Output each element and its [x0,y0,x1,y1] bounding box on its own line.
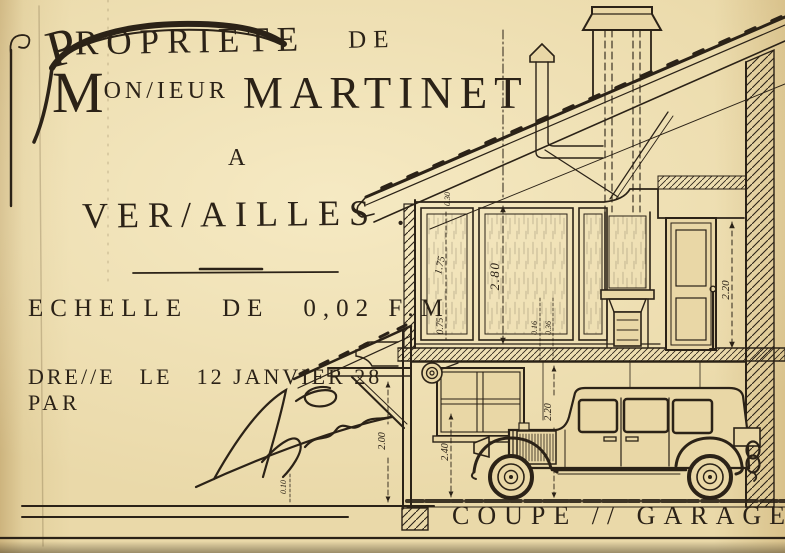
section-label: COUPE // GARAGE [452,503,785,529]
dresse-word: DRE//E [28,364,116,389]
date-value: 12 JANVIER 28 [197,364,383,389]
city-label: VER/AILLES . [82,194,414,233]
preposition-a: A [228,146,245,170]
door [666,218,716,350]
scale-value: 0,02 F.M [303,295,449,322]
le-word: LE [140,364,173,389]
dim-mantel-small: 0.16 [530,321,539,335]
owner-name: MON/IEURMARTINET [52,64,529,122]
divider-rule [133,269,338,273]
title-rest: ROPRIETE [75,20,307,63]
scale-word: ECHELLE [28,295,188,322]
dim-roof-gap: 0.30 [443,192,452,206]
architectural-drawing-scan: 0.10 [0,0,785,553]
dim-awning-clearance: 2.00 [377,432,388,450]
date-line: DRE//ELE12 JANVIER 28 [28,366,382,388]
fireplace [601,212,654,347]
dim-mantel-small2: 0.36 [544,321,553,335]
dim-door-height: 2.20 [720,280,732,300]
par-label: PAR [28,392,81,414]
owner-surname: MARTINET [243,68,529,118]
scale-de: DE [222,295,269,322]
dim-room-height: 2.80 [487,262,502,291]
monsieur-initial: M [52,64,104,122]
monsieur-rest: ON/IEUR [104,78,229,104]
signature [196,387,392,487]
dim-garage-window: 2.40 [440,443,451,461]
dim-ground-step: 0.10 [279,480,288,494]
scale-line: ECHELLEDE0,02 F.M [28,296,450,321]
dim-garage-front: 2.20 [543,403,554,421]
main-roof [357,17,785,229]
title-de: DE [348,26,396,54]
